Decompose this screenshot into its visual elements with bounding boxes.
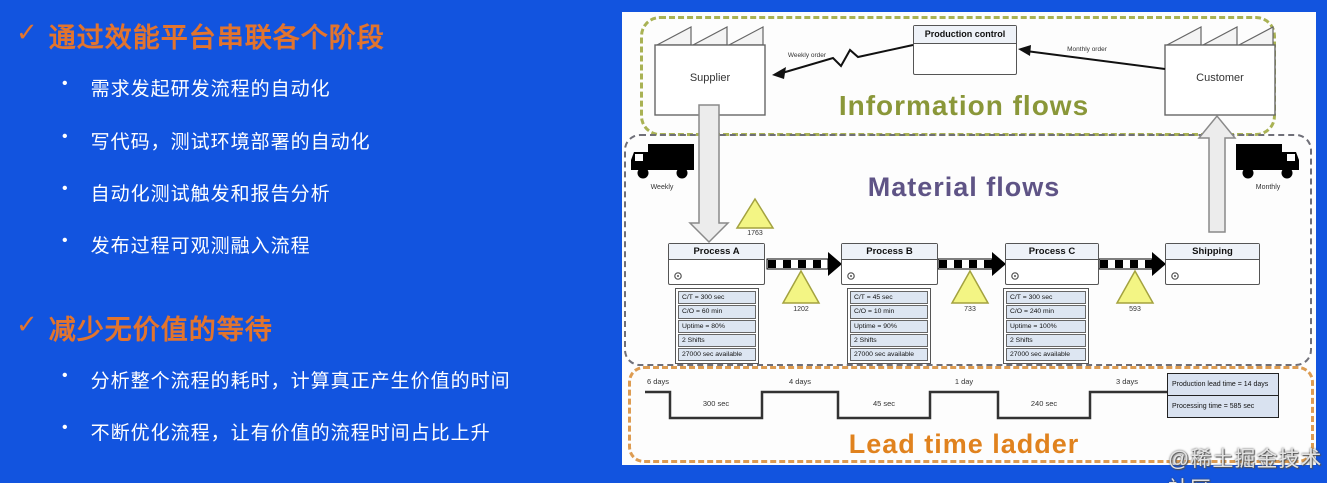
list-item: • 分析整个流程的耗时，计算真正产生价值的时间 bbox=[62, 366, 511, 393]
process-b-data-box: C/T = 45 sec C/O = 10 min Uptime = 90% 2… bbox=[847, 288, 931, 364]
production-lead-time: Production lead time = 14 days bbox=[1168, 374, 1278, 396]
process-b-label: Process B bbox=[842, 244, 937, 260]
ladder-days-label: 4 days bbox=[778, 377, 822, 386]
ladder-sec-label: 45 sec bbox=[860, 399, 908, 408]
check-icon: ✓ bbox=[16, 17, 39, 48]
list-item: • 不断优化流程，让有价值的流程时间占比上升 bbox=[62, 418, 491, 445]
data-row: C/T = 300 sec bbox=[678, 291, 756, 304]
shipping-box: Shipping bbox=[1165, 243, 1260, 285]
data-row: C/T = 300 sec bbox=[1006, 291, 1086, 304]
operator-icon bbox=[1010, 271, 1022, 281]
data-row: 27000 sec available bbox=[678, 348, 756, 361]
ladder-days-label: 3 days bbox=[1105, 377, 1149, 386]
inventory-triangle bbox=[1117, 271, 1153, 303]
bullet-icon: • bbox=[62, 419, 69, 446]
bullet-icon: • bbox=[62, 128, 69, 155]
operator-icon bbox=[673, 271, 685, 281]
inventory-value: 1202 bbox=[781, 306, 821, 313]
watermark: @稀土掘金技术社区 bbox=[1168, 443, 1327, 483]
inventory-value: 1763 bbox=[735, 230, 775, 237]
ladder-days-label: 1 day bbox=[942, 377, 986, 386]
process-c-box: Process C bbox=[1005, 243, 1099, 285]
bullet-text: 分析整个流程的耗时，计算真正产生价值的时间 bbox=[91, 366, 511, 393]
shipping-delivery-arrow bbox=[1199, 116, 1235, 232]
inventory-value: 733 bbox=[950, 306, 990, 313]
data-row: C/O = 240 min bbox=[1006, 305, 1086, 318]
process-a-label: Process A bbox=[669, 244, 764, 260]
data-row: Uptime = 80% bbox=[678, 320, 756, 333]
monthly-order-label: Monthly order bbox=[1052, 46, 1122, 53]
process-b-box: Process B bbox=[841, 243, 938, 285]
process-a-box: Process A bbox=[668, 243, 765, 285]
supplier-delivery-arrow bbox=[690, 105, 728, 242]
data-row: Uptime = 100% bbox=[1006, 320, 1086, 333]
process-a-data-box: C/T = 300 sec C/O = 60 min Uptime = 80% … bbox=[675, 288, 759, 364]
ladder-days-label: 6 days bbox=[636, 377, 680, 386]
customer-label: Customer bbox=[1165, 72, 1275, 84]
bullet-text: 需求发起研发流程的自动化 bbox=[91, 74, 331, 101]
list-item: • 写代码，测试环境部署的自动化 bbox=[62, 127, 371, 154]
production-control-box: Production control bbox=[913, 25, 1017, 75]
process-c-data-box: C/T = 300 sec C/O = 240 min Uptime = 100… bbox=[1003, 288, 1089, 364]
inventory-triangle bbox=[783, 271, 819, 303]
bullet-icon: • bbox=[62, 232, 69, 259]
data-row: C/O = 60 min bbox=[678, 305, 756, 318]
data-row: 27000 sec available bbox=[850, 348, 928, 361]
customer-factory-icon bbox=[1165, 27, 1275, 115]
data-row: Uptime = 90% bbox=[850, 320, 928, 333]
check-icon: ✓ bbox=[16, 309, 39, 340]
weekly-order-label: Weekly order bbox=[772, 52, 842, 59]
bullet-text: 自动化测试触发和报告分析 bbox=[91, 179, 331, 206]
bullet-icon: • bbox=[62, 75, 69, 102]
push-arrow bbox=[938, 252, 1006, 276]
data-row: C/O = 10 min bbox=[850, 305, 928, 318]
bullet-text: 不断优化流程，让有价值的流程时间占比上升 bbox=[91, 418, 491, 445]
section1-heading-text: 通过效能平台串联各个阶段 bbox=[49, 16, 385, 55]
data-row: 2 Shifts bbox=[678, 334, 756, 347]
truck-icon bbox=[1236, 144, 1299, 179]
data-row: 2 Shifts bbox=[1006, 334, 1086, 347]
operator-icon bbox=[1170, 271, 1182, 281]
vsm-diagram-panel: Production control Supplier Customer Wee… bbox=[622, 12, 1316, 465]
operator-icon bbox=[846, 271, 858, 281]
inventory-triangle bbox=[952, 271, 988, 303]
production-control-label: Production control bbox=[914, 26, 1016, 44]
processing-time: Processing time = 585 sec bbox=[1168, 396, 1278, 417]
weekly-order-arrow bbox=[772, 45, 913, 79]
truck-icon bbox=[631, 144, 694, 179]
lead-time-summary-box: Production lead time = 14 days Processin… bbox=[1167, 373, 1279, 418]
bullet-text: 写代码，测试环境部署的自动化 bbox=[91, 127, 371, 154]
data-row: 2 Shifts bbox=[850, 334, 928, 347]
ladder-sec-label: 240 sec bbox=[1020, 399, 1068, 408]
section2-heading: ✓ 减少无价值的等待 bbox=[16, 308, 273, 347]
bullet-icon: • bbox=[62, 367, 69, 394]
information-flows-title: Information flows bbox=[794, 90, 1134, 122]
bullet-icon: • bbox=[62, 180, 69, 207]
inventory-value: 593 bbox=[1115, 306, 1155, 313]
push-arrow bbox=[767, 252, 842, 276]
section2-heading-text: 减少无价值的等待 bbox=[49, 308, 273, 347]
push-arrow bbox=[1099, 252, 1166, 276]
section1-heading: ✓ 通过效能平台串联各个阶段 bbox=[16, 16, 385, 55]
bullet-text: 发布过程可观测融入流程 bbox=[91, 231, 311, 258]
data-row: 27000 sec available bbox=[1006, 348, 1086, 361]
slide: ✓ 通过效能平台串联各个阶段 • 需求发起研发流程的自动化 • 写代码，测试环境… bbox=[0, 0, 1327, 483]
inventory-triangle bbox=[737, 199, 773, 228]
shipping-label: Shipping bbox=[1166, 244, 1259, 260]
supplier-factory-icon bbox=[655, 27, 765, 115]
list-item: • 发布过程可观测融入流程 bbox=[62, 231, 311, 258]
list-item: • 需求发起研发流程的自动化 bbox=[62, 74, 331, 101]
list-item: • 自动化测试触发和报告分析 bbox=[62, 179, 331, 206]
data-row: C/T = 45 sec bbox=[850, 291, 928, 304]
truck-monthly-label: Monthly bbox=[1236, 184, 1300, 191]
lead-time-ladder-title: Lead time ladder bbox=[794, 429, 1134, 460]
ladder-sec-label: 300 sec bbox=[692, 399, 740, 408]
supplier-label: Supplier bbox=[655, 72, 765, 84]
truck-weekly-label: Weekly bbox=[630, 184, 694, 191]
process-c-label: Process C bbox=[1006, 244, 1098, 260]
material-flows-title: Material flows bbox=[794, 172, 1134, 203]
